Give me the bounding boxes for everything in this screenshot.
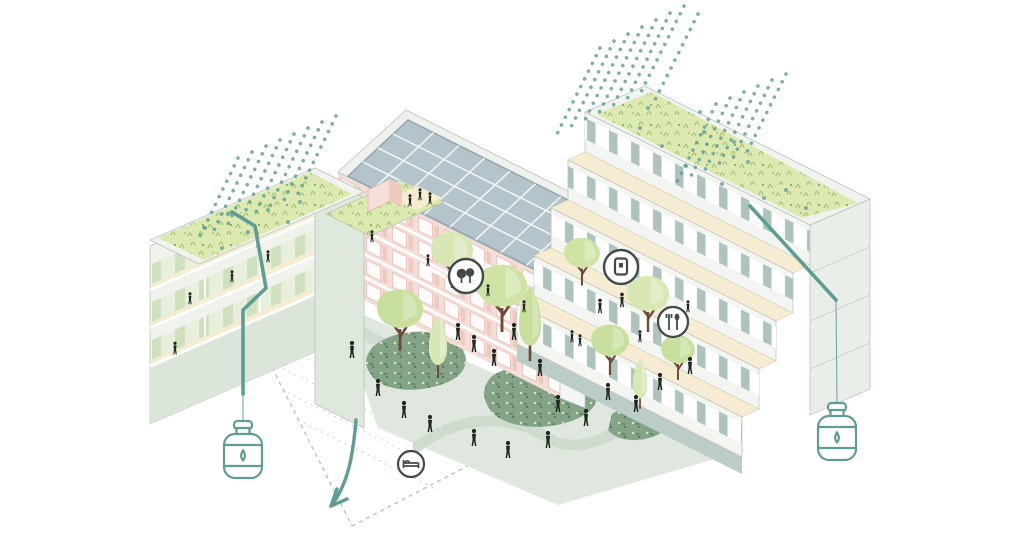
axonometric-scene [0, 0, 1015, 533]
dining-icon [658, 307, 688, 337]
parcel-locker-icon [604, 250, 638, 284]
rain-tank-left [224, 421, 262, 478]
rain-tank-right [818, 403, 856, 460]
trees-icon [449, 259, 483, 293]
flow-arrow [331, 420, 356, 506]
bed-icon [398, 451, 424, 477]
right-end-face [810, 199, 870, 415]
illustration-canvas [0, 0, 1015, 533]
